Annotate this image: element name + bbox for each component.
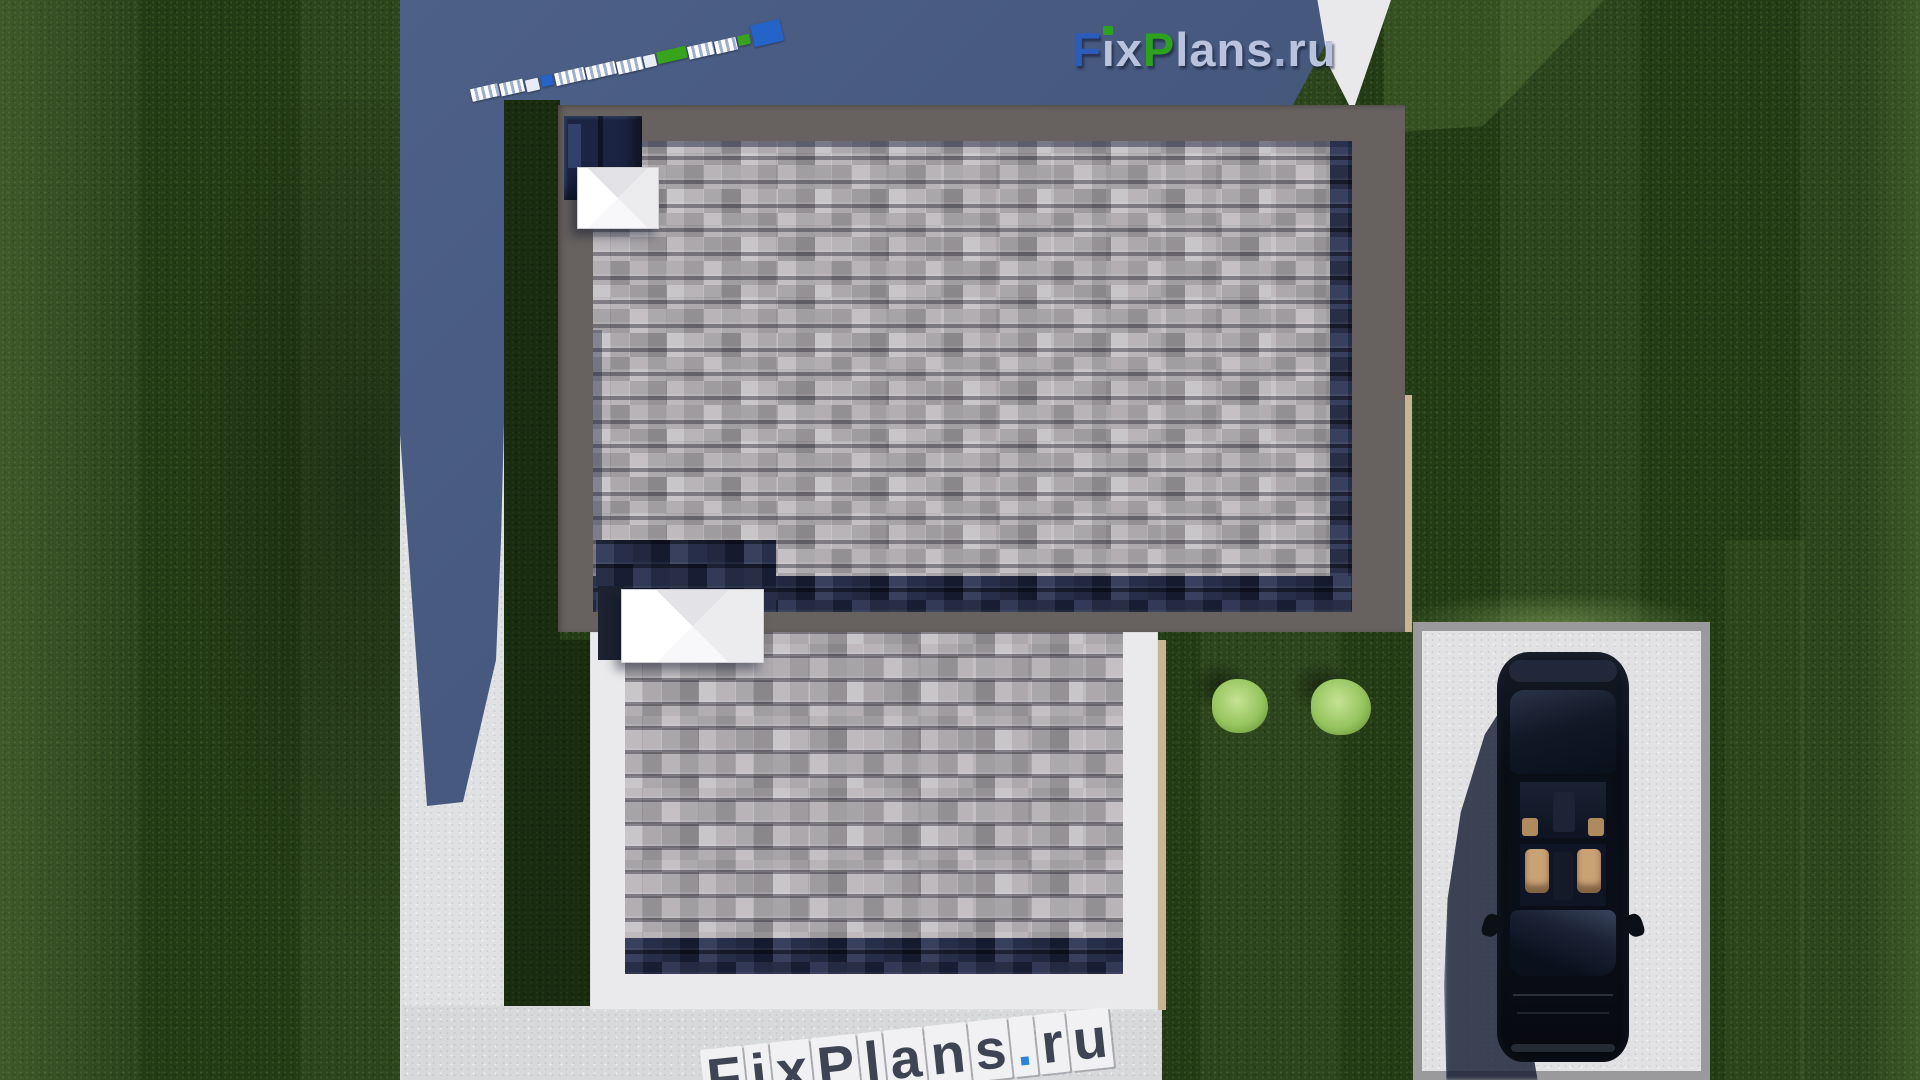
watermark-letter: n (924, 1022, 972, 1080)
logo-letter: r (1287, 26, 1306, 73)
logo-letter: n (1216, 26, 1246, 73)
logo-letter: a (1189, 26, 1216, 73)
watermark-letter: x (769, 1039, 814, 1080)
car-sunroof-rear-pane (1520, 782, 1606, 838)
logo-letter: l (1175, 26, 1189, 73)
car-hood-line-2 (1517, 1012, 1609, 1014)
logo-letter: ı (1102, 26, 1116, 73)
logo-letter: . (1273, 26, 1287, 73)
car-seat-right (1577, 849, 1601, 893)
car-body (1497, 652, 1629, 1062)
car-interior-trim-right (1588, 818, 1604, 836)
bush (1212, 679, 1268, 733)
watermark-letter: a (883, 1027, 928, 1080)
logo-letter: s (1246, 26, 1273, 73)
car-hood-line-1 (1513, 994, 1613, 996)
car-interior-trim-left (1522, 818, 1538, 836)
car-center-console (1553, 852, 1573, 900)
logo-letter: P (1143, 26, 1175, 73)
watermark-letter: r (1034, 1012, 1070, 1075)
car-trunk-highlight (1509, 660, 1617, 682)
logo-letter: x (1116, 26, 1143, 73)
car-windshield (1510, 910, 1616, 976)
car-interior-console-rear (1553, 792, 1575, 832)
logo-letter: u (1307, 26, 1337, 73)
logo-i-dot (1103, 26, 1113, 35)
watermark-letter: F (700, 1046, 748, 1080)
watermark-letter: s (968, 1018, 1013, 1080)
car-roof-glass (1512, 776, 1614, 912)
car-rear-window (1510, 690, 1616, 774)
logo-letter: F (1072, 26, 1102, 73)
watermark-letter: l (857, 1031, 887, 1080)
car-seat-left (1525, 849, 1549, 893)
bush (1311, 679, 1371, 735)
watermark-letter: u (1066, 1007, 1114, 1071)
watermark-letter: . (1009, 1015, 1039, 1077)
fixplans-logo: FıxPlans.ru (1072, 26, 1336, 73)
watermark-letter: P (810, 1034, 861, 1080)
car-sunroof-front-pane (1520, 844, 1606, 906)
car-front-bumper-highlight (1511, 1044, 1615, 1052)
site-plan-render: FıxPlans.ru FixPlans.ru (0, 0, 1920, 1080)
